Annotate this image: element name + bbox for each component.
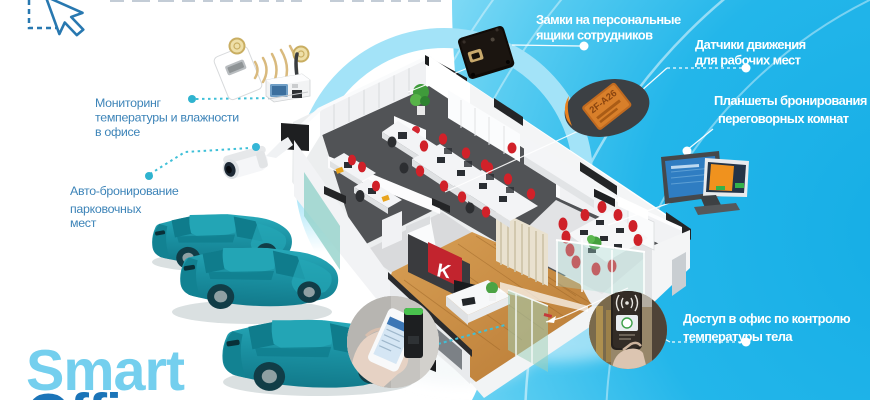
svg-text:парковочных: парковочных <box>70 202 142 216</box>
svg-text:Мониторинг: Мониторинг <box>95 96 161 110</box>
svg-text:температуры и влажности: температуры и влажности <box>95 111 239 125</box>
svg-text:Замки на персональные: Замки на персональные <box>536 12 681 27</box>
svg-text:Датчики движения: Датчики движения <box>695 37 806 52</box>
svg-text:Доступ в офис по контролю: Доступ в офис по контролю <box>683 311 851 326</box>
svg-text:ящики сотрудников: ящики сотрудников <box>536 28 653 43</box>
svg-text:Office: Office <box>26 383 183 400</box>
svg-text:мест: мест <box>70 216 97 230</box>
svg-text:переговорных комнат: переговорных комнат <box>718 111 849 126</box>
svg-text:температуры тела: температуры тела <box>683 329 793 344</box>
svg-text:Авто-бронирование: Авто-бронирование <box>70 184 179 198</box>
svg-text:для рабочих мест: для рабочих мест <box>695 53 801 68</box>
svg-text:Планшеты бронирования: Планшеты бронирования <box>714 93 867 108</box>
svg-text:в офисе: в офисе <box>95 125 140 139</box>
